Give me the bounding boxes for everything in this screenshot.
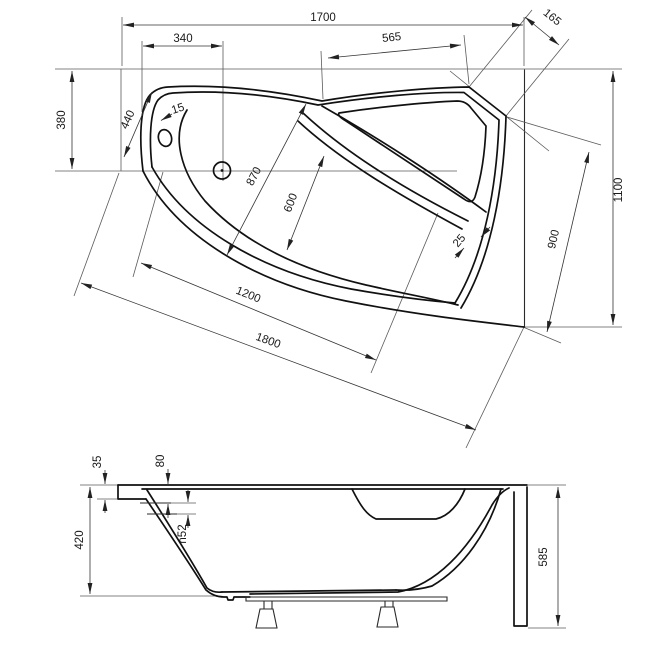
headrest-inner-contour [339,101,486,202]
dim-label-1200: 1200 [234,285,262,306]
leg-front-stem [264,601,272,609]
leg-rear-stem [385,601,393,607]
ext-165-a [469,10,532,87]
dim-label-600: 600 [282,192,300,214]
side-view-construction-lines [80,485,566,628]
dim-label-165: 165 [541,7,563,28]
dim-label-25: 25 [451,232,468,250]
top-view: 1700 340 565 380 440 15 870 600 25 1200 … [55,7,625,448]
dim-label-1700: 1700 [310,12,336,24]
overflow-hole [157,128,174,148]
technical-drawing-page: 1700 340 565 380 440 15 870 600 25 1200 … [0,0,669,664]
inner-wall-right [396,489,501,590]
ext-900-bottom [523,327,561,343]
dim-15-leader [161,114,172,121]
bathtub-technical-drawing: 1700 340 565 380 440 15 870 600 25 1200 … [0,0,669,664]
dim-1800-line [81,283,476,430]
ext-565-right [464,35,469,84]
ext-565-left [321,51,323,99]
side-view: 35 80 n52 420 585 [74,455,566,628]
ext-900-top [507,117,601,145]
dim-565-line [328,45,461,58]
ext-1800-left [74,173,119,296]
dim-label-440: 440 [119,109,138,131]
dim-label-585: 585 [538,547,550,566]
dim-label-n52: n52 [177,524,189,543]
rim-outer-contour [141,86,506,308]
ext-1200-left [133,172,163,277]
backrest-line-b [298,121,462,229]
dim-label-900: 900 [546,229,562,250]
backrest-line-a [303,113,468,221]
side-view-dimensions: 35 80 n52 420 585 [74,455,558,626]
right-support-panel [514,487,527,626]
dim-label-340: 340 [173,33,192,45]
top-view-dimensions: 1700 340 565 380 440 15 870 600 25 1200 … [56,7,625,430]
seat-recess [352,489,465,519]
leg-front-foot [256,609,277,628]
dim-label-565: 565 [382,31,402,45]
dim-label-1800: 1800 [254,331,282,351]
dim-label-1100: 1100 [613,178,625,203]
drain-center-dot [221,169,224,172]
dim-label-380: 380 [56,110,68,129]
top-view-construction-lines [55,10,622,448]
dim-label-35: 35 [92,456,104,469]
tub-underside [250,488,509,594]
dim-label-870: 870 [245,165,265,188]
dim-label-80: 80 [155,455,167,468]
ext-165-b [506,39,569,116]
left-lip [118,485,146,499]
tub-top-outline [141,86,524,327]
tub-side-outline [118,485,527,628]
dim-label-420: 420 [74,530,86,549]
support-frame [246,597,447,601]
leg-rear-foot [377,607,398,627]
